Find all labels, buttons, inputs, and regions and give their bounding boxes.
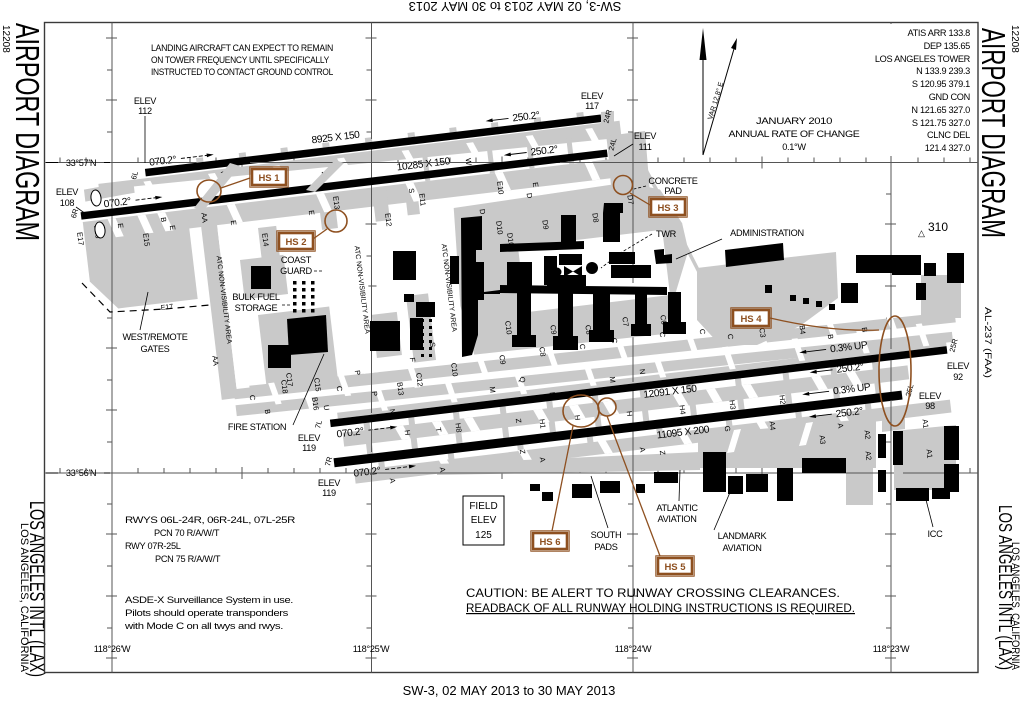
svg-text:AIRPORT DIAGRAM: AIRPORT DIAGRAM — [9, 23, 46, 241]
svg-text:ELEV: ELEV — [318, 478, 341, 488]
svg-text:U: U — [322, 404, 332, 410]
svg-text:H3: H3 — [727, 399, 737, 410]
svg-text:RWYS 06L-24R, 06R-24L, 07L-25R: RWYS 06L-24R, 06R-24L, 07L-25R — [125, 515, 296, 525]
svg-text:108: 108 — [60, 198, 75, 208]
svg-text:H1: H1 — [537, 418, 547, 429]
svg-text:ELEV: ELEV — [56, 187, 79, 197]
svg-text:with Mode C on all twys and rw: with Mode C on all twys and rwys. — [124, 621, 283, 631]
svg-text:HS 6: HS 6 — [539, 537, 560, 548]
svg-text:SW-3, 02 MAY 2013 to 30 MAY 20: SW-3, 02 MAY 2013 to 30 MAY 2013 — [403, 683, 616, 698]
svg-text:D9: D9 — [540, 219, 550, 230]
svg-text:CONCRETE: CONCRETE — [648, 176, 697, 186]
svg-text:AVIATION: AVIATION — [657, 514, 696, 524]
svg-text:CAUTION: BE ALERT TO RUNWAY CR: CAUTION: BE ALERT TO RUNWAY CROSSING CLE… — [466, 586, 840, 600]
svg-text:Pilots should operate transpon: Pilots should operate transponders — [125, 608, 289, 618]
svg-text:HS 2: HS 2 — [285, 237, 306, 248]
svg-text:C9: C9 — [548, 324, 558, 335]
svg-text:ELEV: ELEV — [581, 91, 604, 101]
svg-text:ELEV: ELEV — [298, 433, 321, 443]
svg-text:119: 119 — [322, 488, 336, 498]
svg-text:B4: B4 — [797, 325, 807, 335]
svg-text:C10: C10 — [449, 362, 460, 377]
svg-text:WEST/REMOTE: WEST/REMOTE — [122, 332, 187, 342]
svg-text:D10: D10 — [494, 220, 505, 235]
svg-text:ADMINISTRATION: ADMINISTRATION — [730, 228, 804, 238]
svg-text:AA: AA — [199, 212, 209, 223]
svg-text:98: 98 — [925, 401, 935, 411]
svg-text:HS 5: HS 5 — [664, 562, 686, 573]
svg-text:GND CON: GND CON — [929, 92, 970, 102]
svg-text:C8: C8 — [537, 346, 547, 357]
svg-text:ELEV: ELEV — [947, 361, 970, 371]
svg-text:E17: E17 — [75, 232, 86, 246]
svg-text:AIRPORT DIAGRAM: AIRPORT DIAGRAM — [975, 28, 1012, 238]
svg-text:ELEV: ELEV — [134, 96, 157, 106]
svg-text:FIRE STATION: FIRE STATION — [228, 422, 286, 432]
svg-text:LOS ANGELES, CALIFORNIA: LOS ANGELES, CALIFORNIA — [1009, 542, 1021, 671]
svg-text:ELEV: ELEV — [471, 515, 497, 526]
svg-text:LOS ANGELES TOWER: LOS ANGELES TOWER — [875, 54, 971, 64]
svg-text:C15: C15 — [312, 377, 323, 392]
svg-text:ATIS ARR 133.8: ATIS ARR 133.8 — [907, 28, 970, 38]
svg-text:AA: AA — [210, 355, 220, 366]
svg-text:121.4 327.0: 121.4 327.0 — [925, 143, 970, 153]
svg-text:M: M — [488, 386, 498, 393]
svg-text:RWY 07R-25L: RWY 07R-25L — [125, 541, 181, 551]
svg-text:PADS: PADS — [594, 542, 617, 552]
svg-text:AVIATION: AVIATION — [722, 543, 761, 553]
svg-text:118°24′W: 118°24′W — [615, 644, 652, 654]
svg-text:H8: H8 — [453, 422, 463, 433]
svg-text:92: 92 — [953, 372, 963, 382]
svg-text:C9: C9 — [497, 354, 507, 365]
svg-text:ANNUAL RATE OF CHANGE: ANNUAL RATE OF CHANGE — [729, 129, 860, 139]
svg-text:D10: D10 — [505, 232, 516, 247]
svg-text:33°57′N: 33°57′N — [66, 158, 96, 168]
svg-text:STORAGE: STORAGE — [235, 303, 278, 313]
svg-text:118°26′W: 118°26′W — [94, 644, 131, 654]
svg-text:C17: C17 — [284, 372, 295, 387]
svg-text:CLNC DEL: CLNC DEL — [927, 130, 970, 140]
svg-text:ELEV: ELEV — [634, 131, 657, 141]
svg-text:C6: C6 — [658, 314, 668, 325]
svg-text:A2: A2 — [862, 430, 872, 440]
svg-text:SOUTH: SOUTH — [591, 530, 622, 540]
svg-text:ON TOWER FREQUENCY UNTIL SPECI: ON TOWER FREQUENCY UNTIL SPECIFICALLY — [151, 55, 329, 65]
svg-text:N: N — [638, 368, 648, 374]
svg-text:111: 111 — [638, 142, 651, 152]
svg-text:E13: E13 — [331, 196, 342, 210]
svg-text:PCN 75 R/A/W/T: PCN 75 R/A/W/T — [155, 554, 221, 564]
svg-text:C10: C10 — [503, 320, 514, 335]
svg-text:GUARD: GUARD — [280, 266, 312, 276]
svg-text:33°56′N: 33°56′N — [66, 468, 96, 478]
svg-text:117: 117 — [585, 101, 599, 111]
svg-text:△: △ — [918, 228, 925, 238]
svg-text:S 120.95 379.1: S 120.95 379.1 — [912, 79, 970, 89]
svg-text:LANDMARK: LANDMARK — [718, 531, 768, 541]
svg-text:310: 310 — [928, 220, 948, 234]
svg-text:A3: A3 — [817, 435, 827, 445]
svg-text:E11: E11 — [417, 193, 427, 207]
svg-text:E12: E12 — [383, 213, 394, 227]
svg-text:H4: H4 — [677, 404, 687, 415]
svg-text:118°23′W: 118°23′W — [873, 644, 910, 654]
svg-text:H: H — [573, 414, 583, 420]
svg-text:PCN 70 R/A/W/T: PCN 70 R/A/W/T — [154, 528, 220, 538]
svg-text:125: 125 — [475, 530, 492, 541]
svg-text:BULK FUEL: BULK FUEL — [232, 292, 280, 302]
svg-text:S 121.75 327.0: S 121.75 327.0 — [912, 118, 970, 128]
svg-text:B13: B13 — [395, 382, 406, 396]
svg-text:SW-3, 02 MAY 2013 to 30 MAY 20: SW-3, 02 MAY 2013 to 30 MAY 2013 — [409, 0, 622, 14]
svg-text:118°25′W: 118°25′W — [353, 644, 390, 654]
svg-text:H: H — [403, 429, 413, 435]
svg-text:N: N — [548, 391, 558, 397]
svg-text:ICC: ICC — [928, 529, 944, 539]
svg-text:112: 112 — [138, 106, 152, 116]
svg-text:N 133.9 239.3: N 133.9 239.3 — [916, 66, 970, 76]
svg-text:ASDE-X Surveillance System in: ASDE-X Surveillance System in use. — [125, 595, 293, 605]
svg-text:0.1°W: 0.1°W — [782, 142, 806, 152]
svg-text:C8: C8 — [583, 324, 593, 335]
svg-text:C12: C12 — [414, 372, 425, 387]
svg-text:COAST: COAST — [281, 255, 312, 265]
svg-text:M: M — [608, 376, 618, 383]
svg-text:E15: E15 — [141, 233, 152, 247]
svg-text:B16: B16 — [310, 397, 321, 411]
svg-text:C3: C3 — [757, 327, 767, 338]
svg-text:N 121.65 327.0: N 121.65 327.0 — [911, 105, 970, 115]
svg-text:PAD: PAD — [664, 186, 682, 196]
svg-text:JANUARY 2010: JANUARY 2010 — [756, 116, 832, 126]
svg-text:E10: E10 — [495, 181, 506, 195]
svg-text:READBACK OF ALL RUNWAY HOLDING: READBACK OF ALL RUNWAY HOLDING INSTRUCTI… — [466, 601, 855, 615]
svg-text:119: 119 — [302, 443, 316, 453]
svg-text:HS 3: HS 3 — [657, 203, 678, 214]
svg-text:DEP 135.65: DEP 135.65 — [924, 41, 971, 51]
svg-text:A1: A1 — [924, 449, 934, 459]
svg-text:A1: A1 — [920, 419, 930, 429]
svg-text:ATLANTIC: ATLANTIC — [656, 503, 698, 513]
svg-text:GATES: GATES — [141, 344, 170, 354]
svg-text:A2: A2 — [863, 451, 873, 461]
svg-text:HS 1: HS 1 — [258, 173, 280, 184]
svg-text:INSTRUCTED TO CONTACT GROUND C: INSTRUCTED TO CONTACT GROUND CONTROL — [151, 67, 333, 77]
svg-text:ELEV: ELEV — [919, 391, 942, 401]
svg-text:E14: E14 — [260, 233, 271, 247]
svg-text:LANDING AIRCRAFT CAN EXPECT TO: LANDING AIRCRAFT CAN EXPECT TO REMAIN — [151, 43, 333, 53]
svg-text:H2: H2 — [777, 394, 787, 405]
svg-text:D8: D8 — [590, 212, 600, 223]
svg-text:TWR: TWR — [656, 229, 677, 239]
svg-text:AL-237 (FAA): AL-237 (FAA) — [982, 307, 993, 378]
svg-text:C7: C7 — [620, 316, 630, 327]
svg-text:HS 4: HS 4 — [740, 314, 762, 325]
svg-text:H: H — [625, 410, 635, 416]
svg-text:N: N — [388, 408, 398, 414]
svg-text:A4: A4 — [767, 421, 777, 431]
svg-text:FIELD: FIELD — [469, 501, 497, 512]
